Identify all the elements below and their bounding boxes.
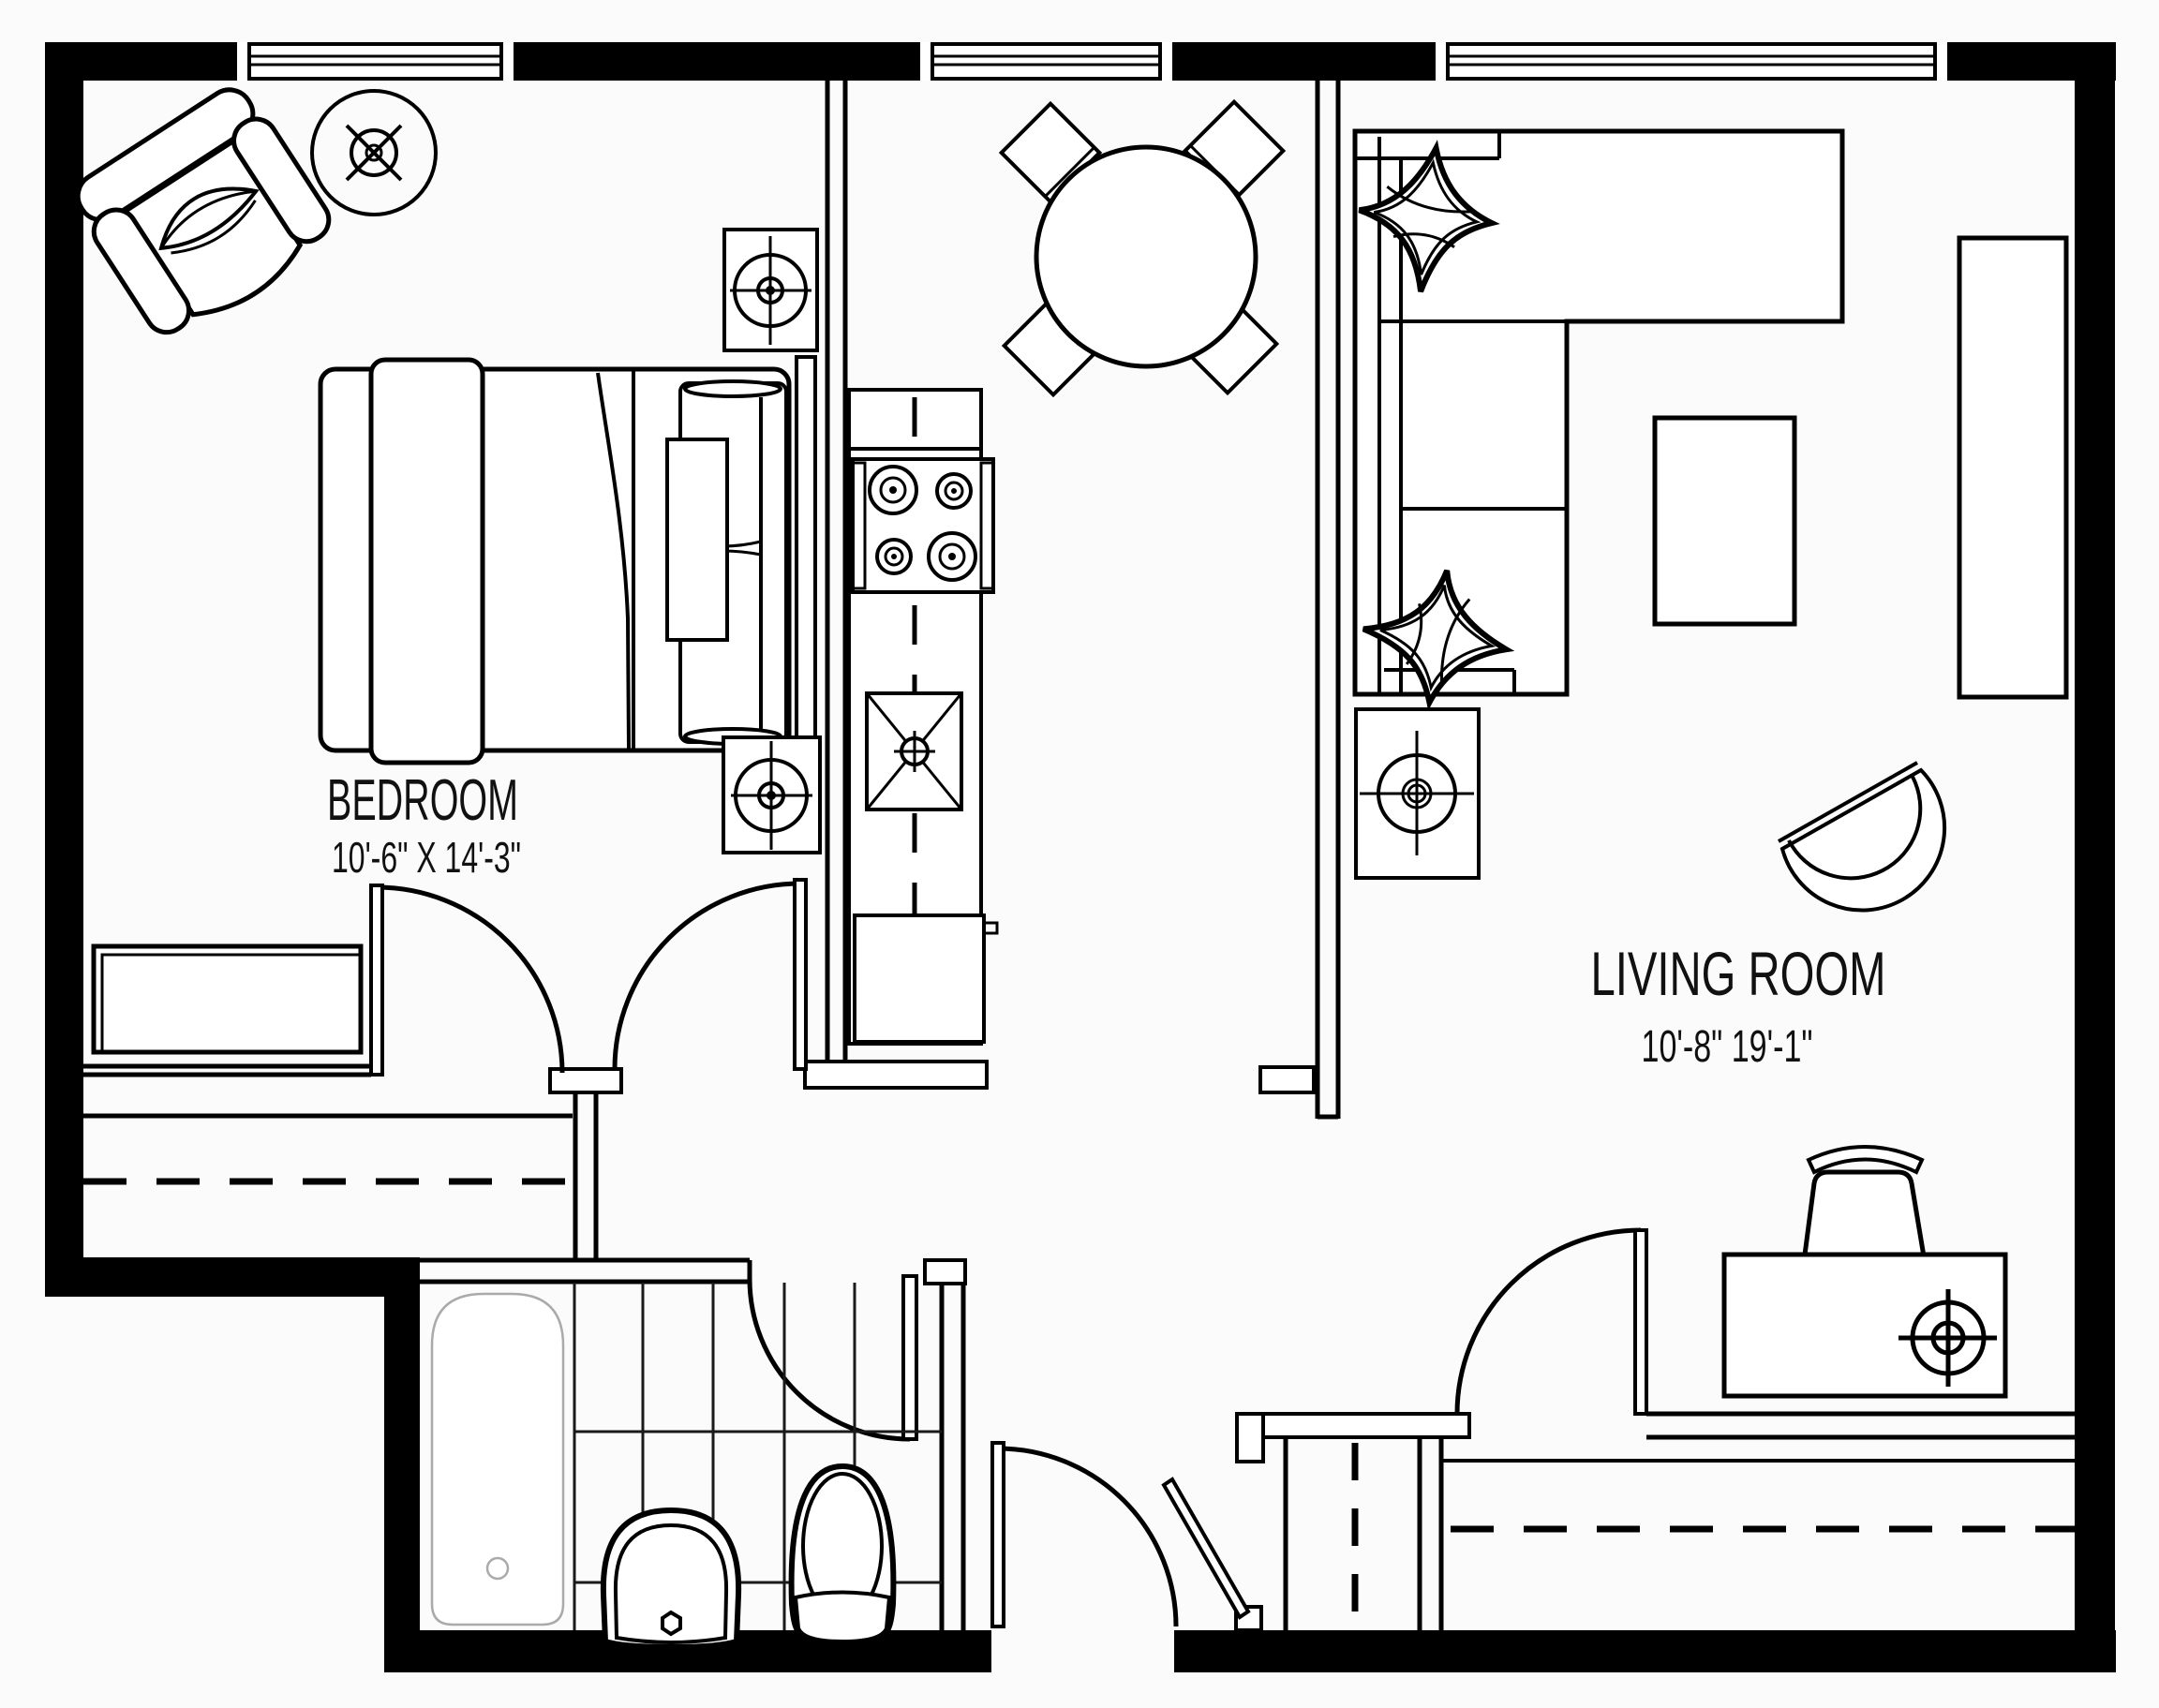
svg-text:10'-6" X 14'-3": 10'-6" X 14'-3" <box>332 833 521 882</box>
svg-text:BEDROOM: BEDROOM <box>327 768 518 833</box>
svg-text:10'-8" 19'-1": 10'-8" 19'-1" <box>1642 1022 1813 1072</box>
svg-text:LIVING ROOM: LIVING ROOM <box>1591 939 1886 1008</box>
